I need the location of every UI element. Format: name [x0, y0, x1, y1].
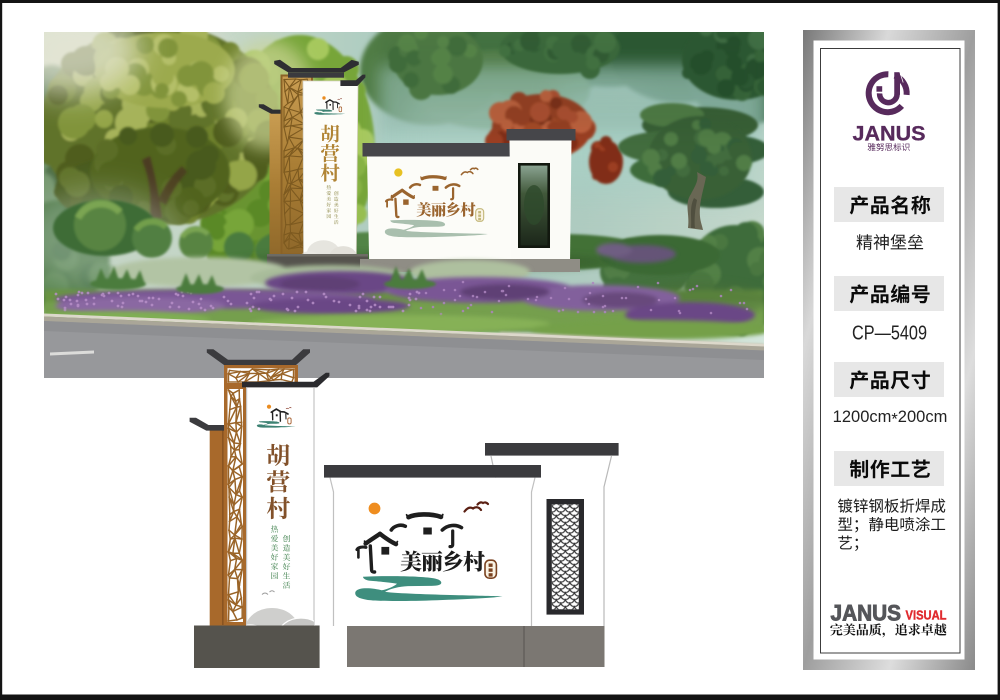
svg-text:VISUAL: VISUAL [906, 608, 947, 623]
svg-text:JANUS: JANUS [853, 121, 926, 145]
svg-text:CP—5409: CP—5409 [852, 323, 927, 345]
svg-text:1200cm*200cm: 1200cm*200cm [833, 408, 948, 429]
svg-text:JANUS: JANUS [831, 601, 902, 626]
